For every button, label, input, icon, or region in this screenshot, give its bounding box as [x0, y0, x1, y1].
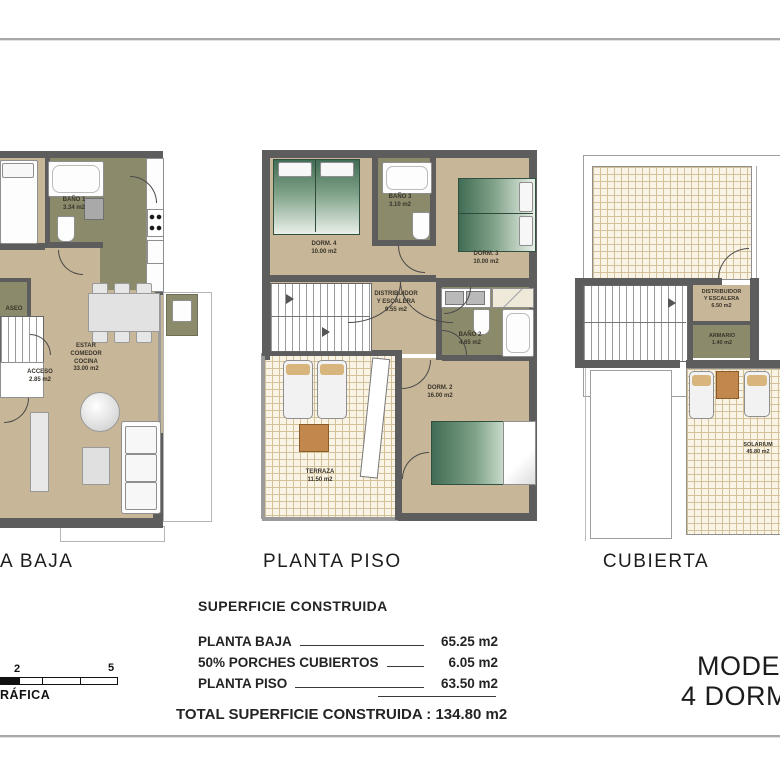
roof-edge-line: [585, 368, 586, 541]
wall: [575, 360, 680, 368]
scale-bar-tick: [80, 677, 81, 685]
model-title-line2: 4 DORMIT: [681, 681, 780, 712]
lounger-cushion: [692, 375, 711, 386]
room-label-armario: ARMARIO 1.40 m2: [696, 333, 748, 347]
summary-row-label: PLANTA BAJA: [198, 634, 292, 649]
sun-lounger: [689, 371, 714, 419]
room-label-distribuidor-cubierta: DISTRIBUIDOR Y ESCALERA 6.50 m2: [694, 289, 749, 310]
total-separator: [378, 696, 496, 697]
wall: [575, 278, 722, 285]
lounger-cushion: [747, 375, 767, 386]
room-label-solarium: SOLARIUM 45.80 m2: [737, 442, 779, 456]
stair-rail: [583, 322, 686, 323]
wall: [575, 278, 583, 367]
wall: [750, 278, 759, 365]
floor-plan-sheet: BAÑO 1 3.34 m2 ASEO ACCESO 2.85 m2 ESTAR…: [0, 0, 780, 780]
summary-row: 50% PORCHES CUBIERTOS 6.05 m2: [198, 649, 498, 670]
stair-direction-arrow: [668, 298, 676, 308]
summary-row-label: 50% PORCHES CUBIERTOS: [198, 655, 379, 670]
summary-row: PLANTA PISO 63.50 m2: [198, 670, 498, 691]
summary-row-value: 6.05 m2: [432, 655, 498, 670]
plan-title-cubierta: CUBIERTA: [597, 551, 715, 573]
leader-line: [300, 645, 424, 646]
lower-roof: [590, 370, 672, 539]
scale-label: RÁFICA: [0, 688, 50, 702]
summary-total: TOTAL SUPERFICIE CONSTRUIDA : 134.80 m2: [176, 706, 498, 723]
wall: [686, 360, 780, 368]
roof-edge-line: [756, 166, 757, 278]
scale-bar-filled-segment: [0, 677, 20, 685]
summary-row-value: 63.50 m2: [432, 676, 498, 691]
scale-bar-tick: [42, 677, 43, 685]
scale-tick-2: 2: [14, 663, 20, 675]
leader-line: [387, 666, 424, 667]
sun-lounger: [744, 371, 770, 417]
summary-row-value: 65.25 m2: [432, 634, 498, 649]
solarium-table: [716, 371, 739, 399]
summary-row: PLANTA BAJA 65.25 m2: [198, 628, 498, 649]
surface-summary: SUPERFICIE CONSTRUIDA PLANTA BAJA 65.25 …: [198, 598, 498, 723]
summary-title: SUPERFICIE CONSTRUIDA: [198, 598, 498, 614]
summary-row-label: PLANTA PISO: [198, 676, 287, 691]
model-title-line1: MODELO: [697, 651, 780, 682]
stairs: [583, 285, 688, 362]
leader-line: [295, 687, 424, 688]
scale-tick-5: 5: [108, 662, 114, 674]
